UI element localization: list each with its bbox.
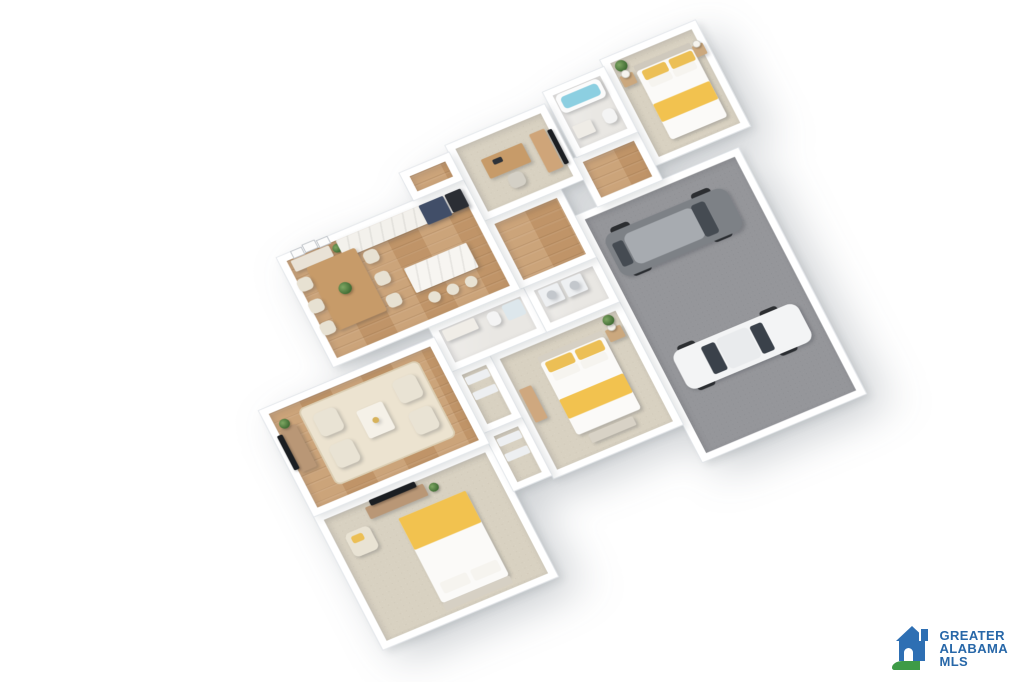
- logo-line-3: MLS: [939, 655, 1008, 668]
- mls-logo: GREATER ALABAMA MLS: [896, 626, 1008, 670]
- floor-plan-render: GREATER ALABAMA MLS: [0, 0, 1024, 682]
- logo-line-2: ALABAMA: [939, 642, 1008, 655]
- logo-line-1: GREATER: [939, 629, 1008, 642]
- floor-plan-3d: [170, 20, 915, 663]
- mls-house-icon: [896, 626, 932, 670]
- house-door-shape: [904, 648, 913, 661]
- green-hill-shape: [892, 661, 920, 670]
- house-chimney-shape: [919, 629, 928, 641]
- mls-logo-text: GREATER ALABAMA MLS: [939, 629, 1008, 668]
